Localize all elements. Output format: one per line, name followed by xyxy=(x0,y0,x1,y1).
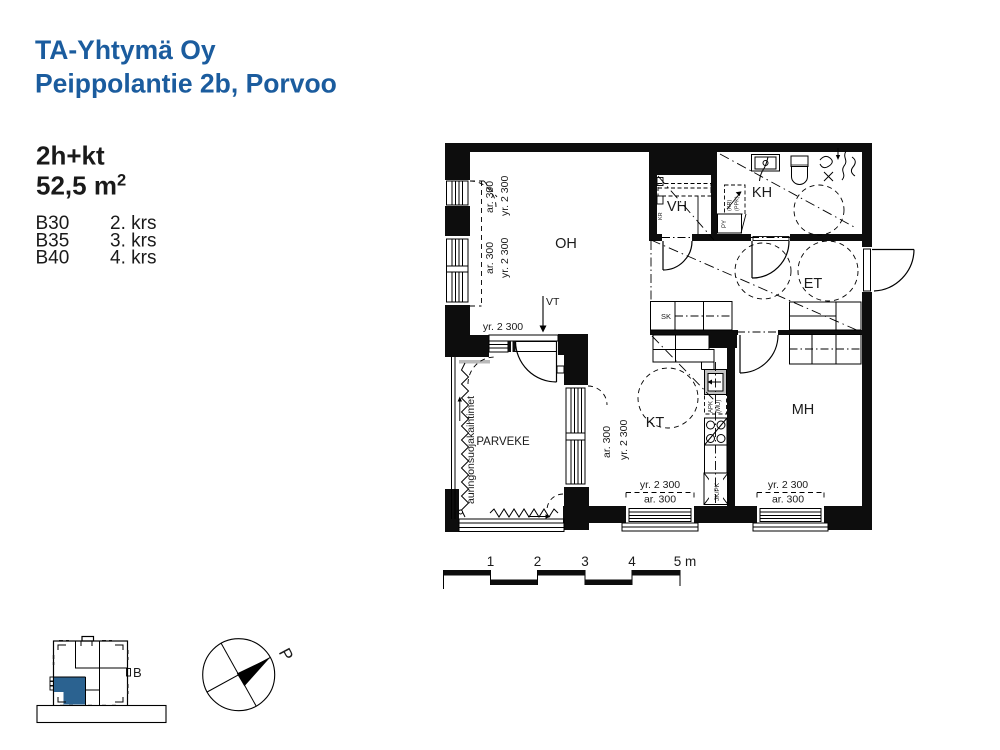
svg-text:yr. 2 300: yr. 2 300 xyxy=(640,479,680,491)
svg-text:ar. 300: ar. 300 xyxy=(644,494,676,506)
svg-text:yr. 2 300: yr. 2 300 xyxy=(483,321,523,333)
svg-text:OH: OH xyxy=(555,236,577,252)
svg-text:auringonsuojakaihtimet: auringonsuojakaihtimet xyxy=(465,396,477,504)
svg-text:1: 1 xyxy=(487,554,495,569)
svg-text:KR: KR xyxy=(658,212,664,220)
svg-text:ar. 300: ar. 300 xyxy=(772,494,804,506)
svg-text:ar. 300: ar. 300 xyxy=(484,242,496,274)
svg-text:4. krs: 4. krs xyxy=(110,248,156,269)
svg-text:Peippolantie 2b, Porvoo: Peippolantie 2b, Porvoo xyxy=(35,69,337,99)
svg-text:(MU): (MU) xyxy=(716,400,722,413)
svg-text:3: 3 xyxy=(581,554,589,569)
svg-text:yr. 2 300: yr. 2 300 xyxy=(768,479,808,491)
svg-text:(KR): (KR) xyxy=(727,200,733,211)
svg-text:TA-Yhtymä Oy: TA-Yhtymä Oy xyxy=(35,35,216,65)
svg-text:ET: ET xyxy=(804,276,823,292)
svg-text:(PPK): (PPK) xyxy=(735,196,741,211)
svg-text:yr. 2 300: yr. 2 300 xyxy=(499,176,511,216)
svg-text:B40: B40 xyxy=(36,248,70,269)
svg-text:2h+kt: 2h+kt xyxy=(36,141,105,171)
svg-text:KT: KT xyxy=(646,415,665,431)
svg-text:VH: VH xyxy=(667,199,687,215)
svg-text:APK: APK xyxy=(709,401,715,413)
svg-text:5 m: 5 m xyxy=(674,554,697,569)
svg-text:2: 2 xyxy=(534,554,542,569)
svg-text:PY: PY xyxy=(722,220,728,228)
svg-text:MH: MH xyxy=(792,402,815,418)
svg-text:ar. 300: ar. 300 xyxy=(601,426,613,458)
svg-text:PARVEKE: PARVEKE xyxy=(476,436,530,448)
svg-text:yr. 2 300: yr. 2 300 xyxy=(499,238,511,278)
svg-text:yr. 2 300: yr. 2 300 xyxy=(618,420,630,460)
svg-text:VT: VT xyxy=(546,296,560,308)
svg-text:B: B xyxy=(133,665,142,680)
svg-text:KH: KH xyxy=(752,185,772,201)
svg-text:SK: SK xyxy=(661,312,671,321)
svg-text:52,5 m2: 52,5 m2 xyxy=(36,171,126,201)
svg-text:4: 4 xyxy=(628,554,636,569)
